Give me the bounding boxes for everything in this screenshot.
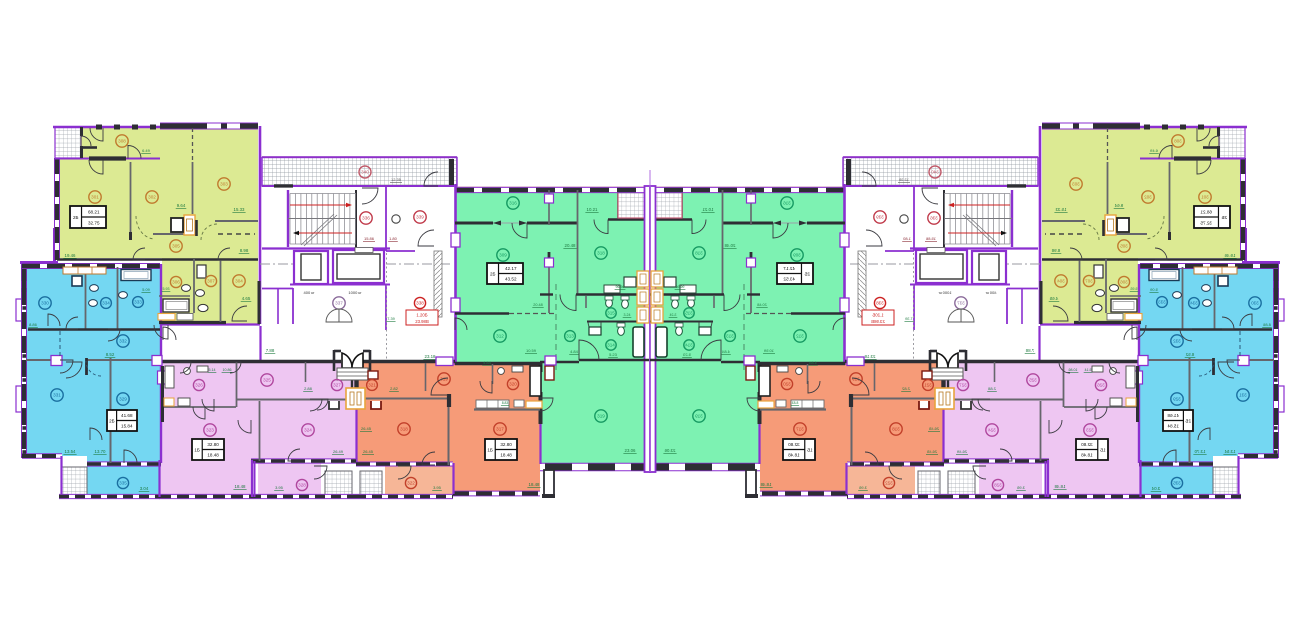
svg-text:318: 318: [597, 251, 605, 256]
svg-text:18.48: 18.48: [529, 482, 541, 487]
svg-text:7.88: 7.88: [266, 348, 275, 353]
svg-text:333: 333: [134, 300, 142, 305]
svg-text:1Б: 1Б: [487, 447, 493, 452]
svg-text:13.54: 13.54: [65, 449, 77, 454]
svg-text:43.52: 43.52: [505, 277, 517, 282]
svg-text:314: 314: [607, 343, 615, 348]
svg-text:23.98В: 23.98В: [415, 319, 429, 324]
svg-text:18.48: 18.48: [500, 453, 512, 458]
svg-text:5.14: 5.14: [209, 368, 216, 372]
svg-text:326: 326: [195, 383, 203, 388]
svg-text:6.49: 6.49: [142, 148, 151, 153]
svg-text:1Б: 1Б: [194, 447, 200, 452]
svg-text:15.33: 15.33: [234, 207, 246, 212]
svg-text:304: 304: [235, 279, 243, 284]
svg-text:316: 316: [509, 201, 517, 206]
svg-text:23.06: 23.06: [625, 448, 637, 453]
svg-text:1.20Б: 1.20Б: [416, 313, 427, 318]
svg-text:330: 330: [41, 301, 49, 306]
svg-text:307: 307: [207, 279, 215, 284]
svg-text:5.23: 5.23: [609, 352, 618, 357]
svg-text:5.09: 5.09: [142, 288, 149, 292]
svg-text:339: 339: [416, 215, 424, 220]
svg-text:10.59: 10.59: [526, 348, 537, 353]
svg-text:12.35: 12.35: [391, 177, 402, 182]
svg-text:3.95: 3.95: [433, 485, 442, 490]
svg-text:324: 324: [304, 428, 312, 433]
svg-text:308: 308: [118, 139, 126, 144]
svg-text:306: 306: [172, 280, 180, 285]
svg-text:335: 335: [119, 481, 127, 486]
svg-text:332: 332: [119, 339, 127, 344]
svg-text:3.04: 3.04: [140, 486, 149, 491]
svg-text:2.88: 2.88: [304, 386, 313, 391]
svg-text:4.84: 4.84: [483, 360, 492, 365]
svg-text:328: 328: [298, 483, 306, 488]
svg-text:322: 322: [407, 481, 415, 486]
svg-text:8.83: 8.83: [502, 401, 509, 405]
svg-text:302: 302: [148, 195, 156, 200]
svg-text:337: 337: [335, 301, 343, 306]
svg-text:1000 кг: 1000 кг: [348, 290, 362, 295]
svg-text:329: 329: [119, 397, 127, 402]
svg-text:331: 331: [53, 393, 61, 398]
svg-text:10.21: 10.21: [587, 207, 599, 212]
svg-text:323: 323: [206, 428, 214, 433]
svg-text:32.80: 32.80: [207, 442, 219, 447]
svg-text:18.48: 18.48: [207, 453, 219, 458]
svg-text:1.80: 1.80: [389, 236, 398, 241]
svg-text:4.84: 4.84: [570, 349, 579, 354]
svg-text:20.48: 20.48: [565, 243, 577, 248]
svg-text:2Б: 2Б: [490, 271, 496, 276]
svg-text:26.45: 26.45: [361, 426, 372, 431]
svg-text:3.95: 3.95: [275, 485, 284, 490]
svg-text:320: 320: [509, 382, 517, 387]
svg-text:327: 327: [333, 383, 341, 388]
svg-text:13.70: 13.70: [95, 449, 107, 454]
svg-text:325: 325: [263, 378, 271, 383]
svg-text:305: 305: [172, 244, 180, 249]
svg-text:319: 319: [597, 414, 605, 419]
svg-text:3.24: 3.24: [624, 313, 631, 317]
svg-text:8.98: 8.98: [240, 248, 249, 253]
svg-text:317: 317: [496, 427, 504, 432]
svg-text:321: 321: [368, 383, 376, 388]
svg-text:336: 336: [362, 216, 370, 221]
svg-text:8.86: 8.86: [29, 322, 38, 327]
svg-text:9.64: 9.64: [177, 203, 186, 208]
svg-text:315: 315: [607, 311, 615, 316]
svg-text:15.84: 15.84: [121, 424, 133, 429]
svg-text:2.82: 2.82: [390, 386, 399, 391]
svg-text:23.18: 23.18: [425, 354, 437, 359]
svg-text:2Б: 2Б: [73, 215, 79, 220]
svg-text:5.93: 5.93: [163, 287, 170, 291]
svg-text:32.80: 32.80: [500, 442, 512, 447]
svg-text:318: 318: [400, 427, 408, 432]
svg-text:42.17: 42.17: [505, 266, 517, 271]
svg-text:18.48: 18.48: [235, 484, 247, 489]
svg-text:334: 334: [102, 301, 110, 306]
svg-text:96.56: 96.56: [616, 285, 625, 289]
svg-text:8.52: 8.52: [106, 352, 115, 357]
svg-text:340: 340: [361, 170, 369, 175]
svg-text:7.39: 7.39: [387, 317, 394, 321]
svg-text:19.46: 19.46: [65, 253, 77, 258]
svg-text:301: 301: [91, 195, 99, 200]
svg-text:32.75: 32.75: [88, 220, 100, 225]
svg-text:303: 303: [220, 182, 228, 187]
svg-text:400 кг: 400 кг: [304, 290, 316, 295]
svg-text:41.68: 41.68: [121, 413, 133, 418]
svg-text:20.48: 20.48: [533, 303, 543, 307]
svg-text:2Б: 2Б: [109, 418, 115, 423]
svg-text:312: 312: [496, 334, 504, 339]
svg-text:68.21: 68.21: [88, 209, 100, 214]
svg-text:15.86: 15.86: [364, 236, 375, 241]
svg-text:313: 313: [566, 334, 574, 339]
svg-text:26.45: 26.45: [363, 449, 374, 454]
svg-text:4.65: 4.65: [242, 296, 251, 301]
svg-text:309: 309: [499, 253, 507, 258]
svg-text:10.86: 10.86: [223, 368, 232, 372]
svg-text:338: 338: [416, 301, 424, 306]
svg-text:26.49: 26.49: [333, 449, 344, 454]
